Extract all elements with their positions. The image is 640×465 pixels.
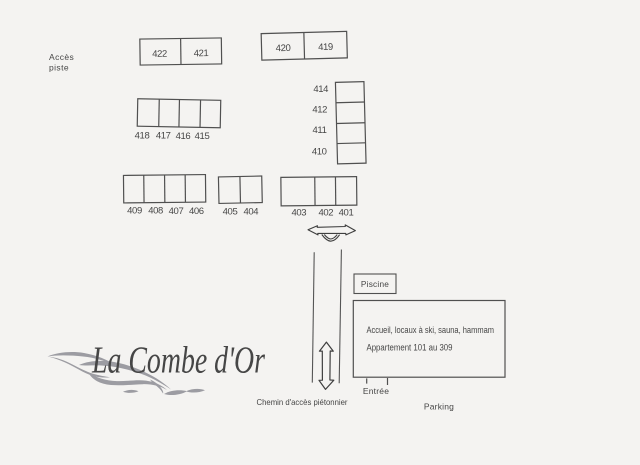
svg-text:408: 408	[148, 206, 163, 217]
svg-text:414: 414	[313, 84, 328, 95]
svg-text:410: 410	[312, 147, 327, 158]
svg-text:Accès: Accès	[49, 52, 74, 62]
svg-text:Chemin d'accès piétonnier: Chemin d'accès piétonnier	[257, 397, 348, 407]
svg-text:401: 401	[339, 208, 354, 219]
svg-text:419: 419	[318, 42, 333, 53]
svg-text:piste: piste	[49, 63, 69, 73]
svg-text:416: 416	[176, 131, 191, 142]
svg-text:405: 405	[223, 207, 238, 218]
svg-text:Entrée: Entrée	[363, 386, 389, 396]
svg-text:407: 407	[169, 206, 184, 217]
svg-text:402: 402	[318, 208, 333, 219]
svg-text:Appartement 101 au 309: Appartement 101 au 309	[367, 343, 453, 353]
svg-text:421: 421	[194, 48, 209, 59]
svg-text:Piscine: Piscine	[361, 279, 389, 289]
svg-text:412: 412	[312, 105, 327, 116]
svg-text:420: 420	[276, 43, 291, 54]
svg-text:Accueil, locaux à ski, sauna,: Accueil, locaux à ski, sauna, hammam	[367, 325, 495, 335]
svg-text:422: 422	[152, 49, 167, 60]
svg-text:La Combe d'Or: La Combe d'Or	[91, 340, 265, 382]
svg-text:406: 406	[189, 206, 204, 217]
svg-text:415: 415	[195, 131, 210, 142]
svg-text:403: 403	[291, 207, 306, 218]
svg-text:411: 411	[313, 125, 327, 136]
svg-text:Parking: Parking	[424, 402, 454, 412]
svg-text:418: 418	[135, 131, 150, 142]
svg-text:417: 417	[156, 130, 171, 141]
svg-text:404: 404	[243, 207, 258, 218]
svg-text:409: 409	[127, 206, 142, 217]
